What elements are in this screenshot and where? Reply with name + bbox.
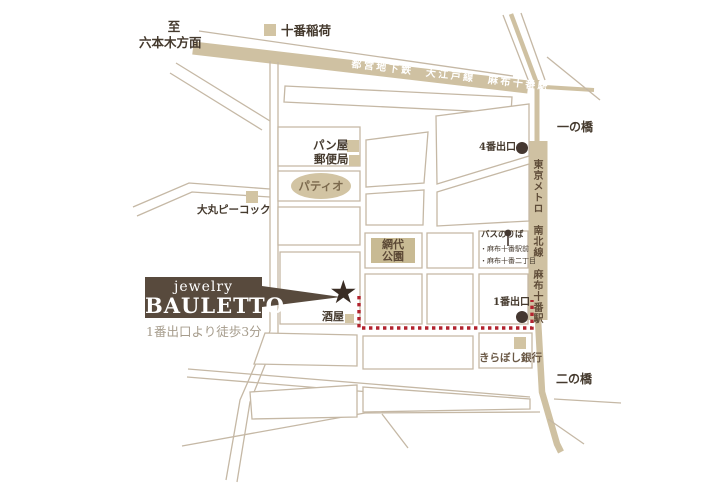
access-map: 至 六本木方面 十番稲荷 都営地下鉄 大江戸線 麻布十番駅 東京メトロ 南北線 … <box>0 0 720 485</box>
street-lower-horizontal-a <box>188 369 530 397</box>
block-south2 <box>363 336 473 369</box>
street-nw-diagonal-b <box>170 73 262 130</box>
label-ninohashi: 二の橋 <box>556 373 592 386</box>
block-m2 <box>366 190 424 225</box>
label-ajiro-park-line2: 公園 <box>371 251 415 263</box>
post-office-marker <box>349 155 360 166</box>
label-direction-to: 至 <box>158 20 190 34</box>
label-daimaru-peacock: 大丸ピーコック <box>197 205 271 217</box>
label-namboku-line: 東京メトロ 南北線 麻布十番駅 <box>531 159 542 329</box>
block-below-park <box>365 274 422 324</box>
label-juban-inari: 十番稲荷 <box>281 24 331 38</box>
block-m1 <box>366 132 428 187</box>
label-ichinohashi: 一の橋 <box>557 121 593 134</box>
street-bottom-fork <box>382 414 408 448</box>
label-exit4: 4番出口 <box>479 142 516 153</box>
label-bus-stop-2: ・麻布十番二丁目 <box>480 258 536 266</box>
block-south3 <box>250 385 357 419</box>
bauletto-logo: jewelry BAULETTO <box>145 277 262 318</box>
block-mid2 <box>427 274 473 324</box>
logo-brand-name: BAULETTO <box>145 295 262 316</box>
bank-marker <box>514 337 526 349</box>
street-nw-diagonal-a <box>176 63 270 121</box>
juban-inari-marker <box>264 24 276 36</box>
street-northeast <box>547 57 600 100</box>
road-from-north <box>511 14 536 81</box>
label-post-office: 郵便局 <box>314 153 349 166</box>
block-sliver <box>284 86 512 113</box>
street-ninohashi-bridge <box>554 399 621 403</box>
shop-location-star-icon: ★ <box>329 276 358 308</box>
label-kiraboshi-bank: きらぼし銀行 <box>479 353 542 365</box>
exit4-dot <box>516 142 528 154</box>
label-bakery: パン屋 <box>313 139 348 152</box>
sakaya-marker <box>345 314 354 323</box>
label-sakaya: 酒屋 <box>322 311 344 323</box>
peacock-marker <box>246 191 258 203</box>
label-exit1: 1番出口 <box>493 297 530 308</box>
exit1-dot <box>516 311 528 323</box>
bakery-marker <box>347 140 359 152</box>
block-mid1 <box>427 233 473 268</box>
label-patio: パティオ <box>291 180 351 193</box>
logo-access-note: 1番出口より徒歩3分 <box>146 321 262 340</box>
street-bottom-diagonal <box>182 412 540 446</box>
block-south1 <box>254 333 357 366</box>
block-c3 <box>278 207 360 245</box>
label-bus-stop-title: バスのりば <box>481 231 524 240</box>
label-roppongi-direction: 六本木方面 <box>139 36 202 50</box>
map-canvas <box>0 0 720 485</box>
label-bus-stop-1: ・麻布十番駅前 <box>480 246 529 254</box>
